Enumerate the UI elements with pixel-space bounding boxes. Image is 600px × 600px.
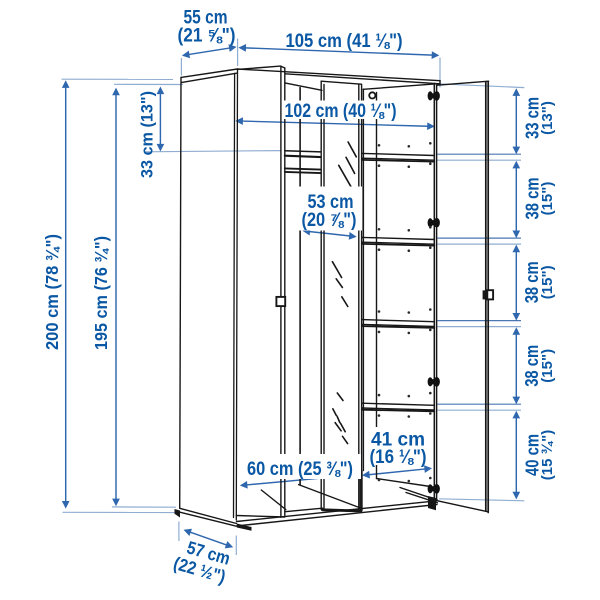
svg-text:60 cm (25 ⅜"): 60 cm (25 ⅜") <box>247 459 353 480</box>
svg-text:102 cm (40 ⅛"): 102 cm (40 ⅛") <box>285 101 397 122</box>
svg-text:105 cm (41 ⅛"): 105 cm (41 ⅛") <box>286 31 403 52</box>
svg-text:(13"): (13") <box>539 101 556 135</box>
svg-text:33 cm (13"): 33 cm (13") <box>137 91 156 178</box>
svg-text:(15"): (15") <box>539 182 556 216</box>
svg-text:(15"): (15") <box>539 265 556 299</box>
svg-text:200 cm (78 ¾"): 200 cm (78 ¾") <box>42 234 62 350</box>
svg-text:(16 ⅛"): (16 ⅛") <box>370 447 427 468</box>
svg-text:(20 ⅞"): (20 ⅞") <box>302 210 357 231</box>
svg-text:(15 ¾"): (15 ¾") <box>539 430 556 480</box>
svg-text:(15"): (15") <box>539 349 556 383</box>
svg-text:(21 ⅝"): (21 ⅝") <box>178 26 236 47</box>
svg-text:195 cm (76 ¾"): 195 cm (76 ¾") <box>91 236 111 350</box>
